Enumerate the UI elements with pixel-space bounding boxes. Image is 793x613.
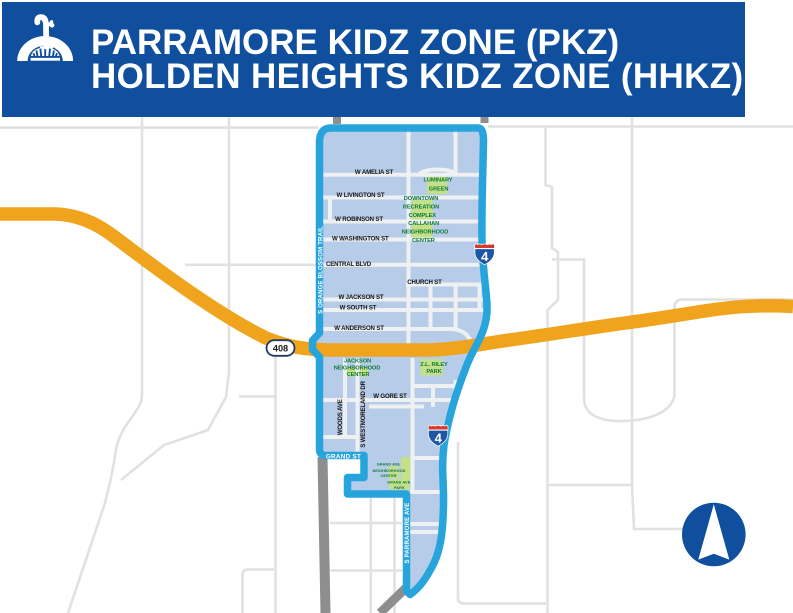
svg-text:NEIGHBORHOOD: NEIGHBORHOOD: [334, 365, 381, 371]
svg-text:LUMINARY: LUMINARY: [423, 178, 452, 184]
svg-text:W LIVINGTON ST: W LIVINGTON ST: [337, 192, 385, 199]
svg-text:CENTRAL BLVD: CENTRAL BLVD: [326, 261, 372, 268]
svg-text:W JACKSON ST: W JACKSON ST: [339, 294, 384, 301]
svg-text:W ANDERSON ST: W ANDERSON ST: [334, 325, 384, 332]
svg-text:S WESTMORELAND DR: S WESTMORELAND DR: [360, 380, 367, 447]
svg-text:W ROBINSON ST: W ROBINSON ST: [335, 216, 383, 223]
svg-text:RECREATION: RECREATION: [403, 204, 439, 210]
svg-text:GRAND AVE: GRAND AVE: [377, 462, 401, 466]
svg-text:PARK: PARK: [426, 369, 442, 375]
svg-text:WOODS AVE: WOODS AVE: [337, 399, 344, 435]
svg-text:CENTER: CENTER: [347, 372, 370, 378]
svg-text:GRAND AVE: GRAND AVE: [387, 480, 411, 484]
svg-text:CENTER: CENTER: [380, 474, 396, 478]
svg-text:NEIGHBORHOOD: NEIGHBORHOOD: [402, 229, 449, 235]
svg-text:W SOUTH ST: W SOUTH ST: [340, 304, 377, 311]
svg-text:CHURCH ST: CHURCH ST: [407, 279, 442, 286]
svg-text:408: 408: [273, 344, 288, 354]
svg-text:PARK: PARK: [394, 486, 405, 490]
svg-text:Z.L. RILEY: Z.L. RILEY: [420, 362, 448, 368]
svg-text:W GORE ST: W GORE ST: [373, 393, 407, 400]
svg-text:W WASHINGTON ST: W WASHINGTON ST: [332, 236, 389, 243]
svg-text:S ORANGE BLOSSOM TRAIL: S ORANGE BLOSSOM TRAIL: [318, 226, 324, 314]
svg-text:DOWNTOWN: DOWNTOWN: [404, 196, 438, 202]
svg-text:CENTER: CENTER: [412, 238, 435, 244]
svg-text:JACKSON: JACKSON: [344, 358, 371, 364]
svg-text:S PARRAMORE AVE: S PARRAMORE AVE: [405, 503, 411, 564]
svg-text:GRAND ST: GRAND ST: [326, 453, 361, 460]
svg-text:HOLDEN HEIGHTS KIDZ ZONE (HHKZ: HOLDEN HEIGHTS KIDZ ZONE (HHKZ): [91, 57, 744, 96]
svg-text:NEIGHBORHOOD: NEIGHBORHOOD: [372, 469, 405, 473]
svg-text:GREEN: GREEN: [429, 187, 449, 193]
svg-text:COMPLEX: COMPLEX: [409, 213, 437, 219]
svg-text:W AMELIA ST: W AMELIA ST: [355, 169, 394, 176]
svg-text:CALLAHAN: CALLAHAN: [408, 221, 439, 227]
svg-text:4: 4: [481, 249, 489, 264]
